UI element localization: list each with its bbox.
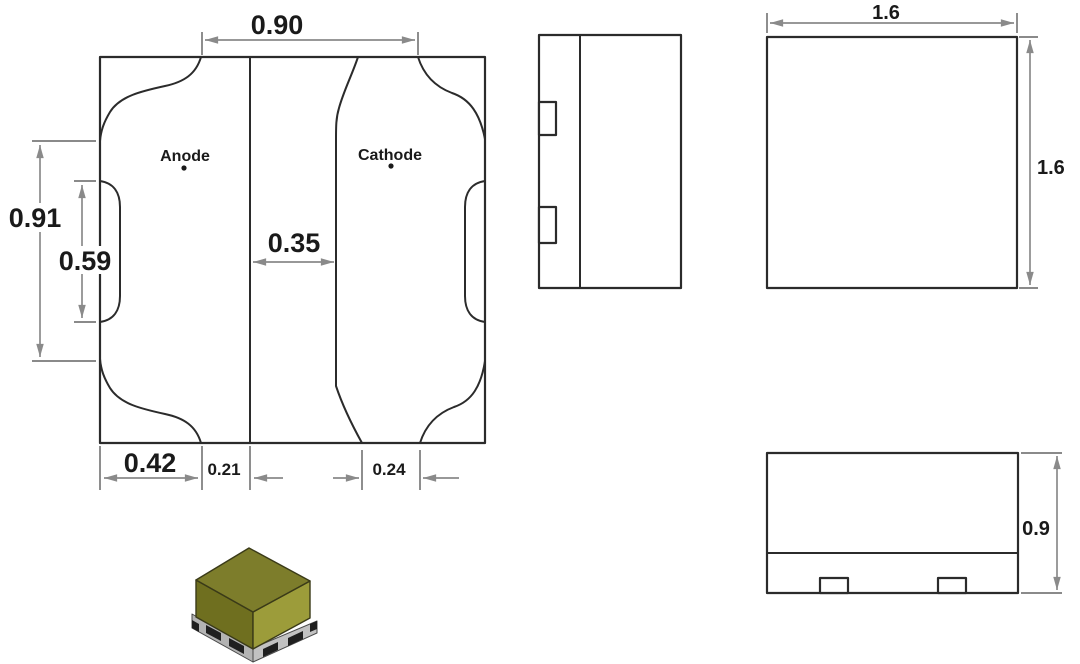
dim-label-outer-height: 0.91 — [9, 203, 62, 233]
dim-label-pad-gap: 0.35 — [268, 228, 321, 258]
dim-label-top-width: 0.90 — [251, 10, 304, 40]
led-3d-render — [192, 548, 317, 662]
front-view-terminal-left — [820, 578, 848, 593]
dim-label-anode-inner-offset: 0.21 — [207, 460, 240, 479]
dim-label-anode-pad-width: 0.42 — [124, 448, 177, 478]
front-view-outline — [767, 453, 1018, 593]
dim-label-top-view-height: 1.6 — [1037, 157, 1065, 179]
front-view: 0.9 — [767, 453, 1062, 593]
anode-label: Anode — [160, 148, 210, 165]
anode-marker-dot — [181, 165, 186, 170]
dim-label-notch-height: 0.59 — [59, 246, 112, 276]
top-view-outline — [767, 37, 1017, 288]
side-view-terminal-upper — [539, 102, 556, 135]
side-view-terminal-lower — [539, 207, 556, 243]
side-view — [539, 35, 681, 288]
top-view: 1.6 1.6 — [767, 2, 1065, 288]
cathode-marker-dot — [388, 163, 393, 168]
led-package-dimensional-drawing: Anode Cathode 0.90 0.91 0.59 0.35 — [0, 0, 1080, 664]
dim-label-top-view-width: 1.6 — [872, 2, 900, 24]
side-view-outline — [539, 35, 681, 288]
dim-label-front-view-height: 0.9 — [1022, 518, 1050, 540]
dim-label-cathode-inner-offset: 0.24 — [372, 460, 406, 479]
front-view-terminal-right — [938, 578, 966, 593]
cathode-label: Cathode — [358, 147, 422, 164]
drawing-svg: Anode Cathode 0.90 0.91 0.59 0.35 — [0, 0, 1080, 664]
